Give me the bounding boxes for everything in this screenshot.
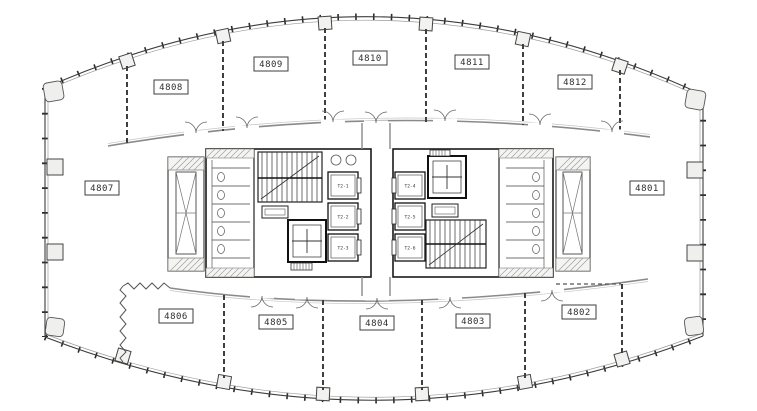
shaft-block-right (556, 157, 590, 271)
structural-columns (43, 16, 707, 401)
curtain-wall-bottom (45, 336, 703, 400)
elevator-cabin-label: T2-6 (404, 246, 415, 252)
corner-column-top-right (684, 89, 706, 111)
corner-column-top-left (43, 80, 65, 102)
perimeter-column-left-upper (47, 159, 63, 175)
elevator-cabin-label: T2-3 (337, 246, 348, 252)
shaft-block-left (168, 157, 204, 271)
elevator-door (392, 178, 396, 193)
elevator-cabin-label: T2-1 (337, 184, 348, 190)
room-label-4808: 4808 (154, 80, 188, 94)
room-label-4812: 4812 (558, 75, 592, 89)
room-4807-area (48, 95, 163, 330)
building-envelope (45, 17, 703, 401)
room-4806-area (126, 288, 221, 373)
room-4809-area (226, 30, 322, 128)
hatch-band (556, 157, 590, 170)
corner-column-bottom-left (45, 317, 65, 337)
room-label-4806: 4806 (159, 309, 193, 323)
elevator-cabin-label: T2-4 (404, 184, 415, 190)
perimeter-column-right-lower (687, 245, 703, 261)
elevator-cabin: T2-3 (328, 234, 361, 261)
elevator-cabin: T2-6 (392, 234, 425, 261)
double-swing-door (295, 295, 319, 309)
floor-plan-sheet: T2-1 T2-2 T2-3 T2-4 (0, 0, 757, 411)
room-label-text: 4806 (164, 312, 188, 322)
elevator-cabin-label: T2-2 (337, 215, 348, 221)
hatch-band (499, 149, 553, 158)
room-label-text: 4807 (90, 184, 114, 194)
room-label-4802: 4802 (562, 305, 596, 319)
machine-closet-right (432, 204, 458, 217)
elevator-bank-left: T2-1 T2-2 T2-3 (328, 172, 361, 261)
room-label-text: 4802 (567, 308, 591, 318)
service-elevator-left (288, 220, 326, 262)
elevator-door (357, 178, 361, 193)
hatch-band (556, 258, 590, 271)
room-4802-area (528, 286, 619, 376)
room-label-text: 4803 (461, 317, 485, 327)
room-4810-area (328, 20, 423, 120)
corner-column-bottom-right (684, 316, 704, 336)
elevator-cabin: T2-2 (328, 203, 361, 230)
room-label-4801: 4801 (630, 181, 664, 195)
room-label-text: 4805 (264, 318, 288, 328)
room-label-4804: 4804 (360, 316, 394, 330)
elevator-cabin: T2-4 (392, 172, 425, 199)
elevator-door (357, 209, 361, 224)
elevator-bank-right: T2-4 T2-5 T2-6 (392, 172, 425, 261)
double-swing-door (365, 296, 389, 310)
room-label-text: 4811 (460, 58, 484, 68)
service-elevator-right (428, 156, 466, 198)
room-4811-area (429, 22, 520, 122)
elevator-door (392, 209, 396, 224)
room-label-text: 4810 (358, 54, 382, 64)
room-areas (48, 20, 700, 390)
room-label-4803: 4803 (456, 314, 490, 328)
operable-partition-horizontal (123, 283, 170, 289)
louver-grille (430, 150, 450, 156)
double-swing-door (184, 122, 208, 136)
room-label-text: 4801 (635, 184, 659, 194)
room-4805-area (227, 297, 320, 382)
corridor-wall-bottom (170, 279, 648, 301)
room-label-4810: 4810 (353, 51, 387, 65)
louver-grille (291, 263, 312, 270)
room-4804-area (326, 302, 419, 390)
double-swing-door (528, 114, 552, 128)
room-label-text: 4804 (365, 319, 389, 329)
hatch-band (499, 268, 553, 277)
room-label-4805: 4805 (259, 315, 293, 329)
glazing-line-bottom (45, 333, 703, 397)
elevator-door (357, 240, 361, 255)
room-label-text: 4812 (563, 78, 587, 88)
core-right: T2-4 T2-5 T2-6 (392, 149, 553, 277)
core-left: T2-1 T2-2 T2-3 (206, 149, 371, 277)
room-label-4807: 4807 (85, 181, 119, 195)
floor-plan-drawing: T2-1 T2-2 T2-3 T2-4 (0, 0, 757, 411)
elevator-door (392, 240, 396, 255)
facade-column (318, 16, 332, 30)
double-swing-door (433, 110, 457, 124)
elevator-cabin: T2-1 (328, 172, 361, 199)
elevator-cabin-label: T2-5 (404, 215, 415, 221)
facade-column (419, 17, 433, 31)
perimeter-column-right-upper (687, 162, 703, 178)
perimeter-column-left-lower (47, 244, 63, 260)
room-label-text: 4809 (259, 60, 283, 70)
room-label-4809: 4809 (254, 57, 288, 71)
elevator-cabin: T2-5 (392, 203, 425, 230)
facade-column (614, 351, 630, 367)
room-label-text: 4808 (159, 83, 183, 93)
machine-closet-left (262, 206, 288, 218)
room-label-4811: 4811 (455, 55, 489, 69)
double-swing-door (235, 117, 259, 131)
